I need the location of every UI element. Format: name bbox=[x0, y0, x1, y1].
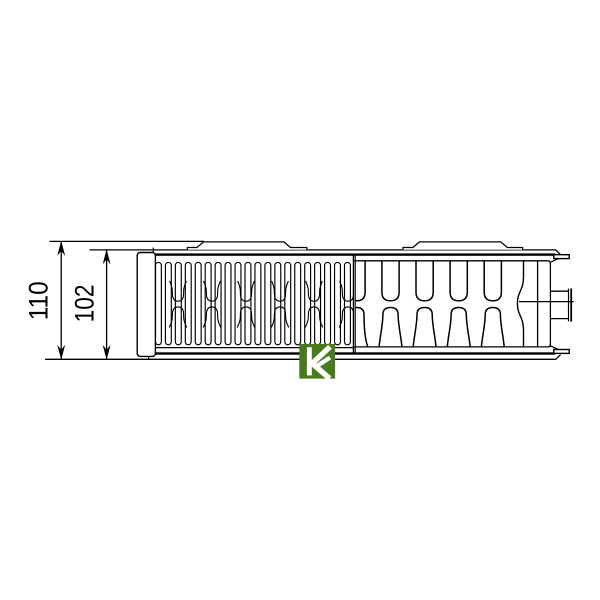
svg-text:102: 102 bbox=[70, 284, 100, 322]
svg-text:110: 110 bbox=[24, 281, 54, 320]
